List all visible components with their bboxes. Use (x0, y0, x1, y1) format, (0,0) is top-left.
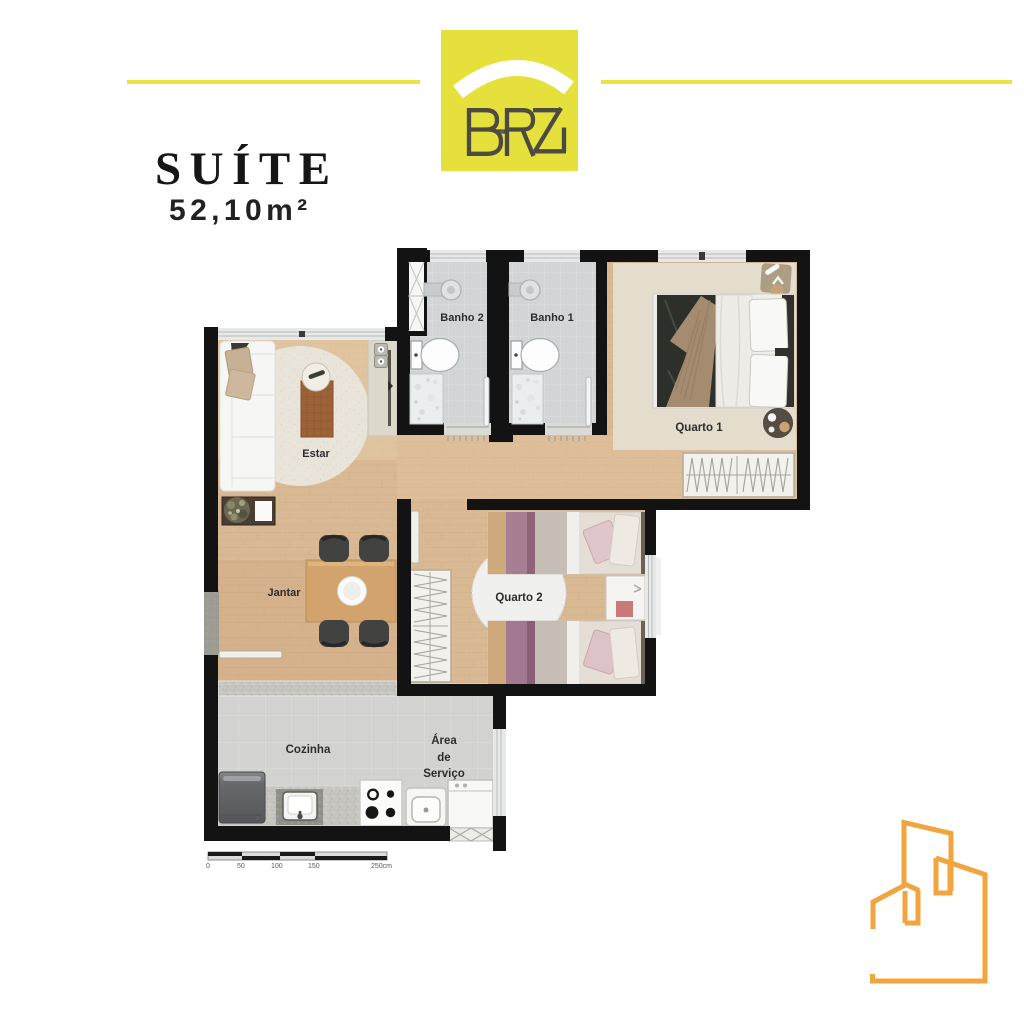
svg-text:250cm: 250cm (371, 863, 392, 870)
svg-text:0: 0 (206, 863, 210, 870)
svg-text:150: 150 (308, 863, 320, 870)
svg-text:Serviço: Serviço (423, 768, 465, 780)
svg-text:Cozinha: Cozinha (286, 744, 331, 756)
svg-text:SUÍTE: SUÍTE (155, 143, 339, 195)
svg-text:de: de (437, 752, 450, 764)
svg-text:Estar: Estar (302, 448, 330, 460)
svg-text:Banho 1: Banho 1 (530, 312, 573, 324)
svg-text:Área: Área (431, 734, 457, 747)
svg-text:100: 100 (271, 863, 283, 870)
svg-text:50: 50 (237, 863, 245, 870)
svg-text:Quarto 2: Quarto 2 (495, 592, 542, 604)
svg-text:Banho 2: Banho 2 (440, 312, 483, 324)
svg-text:52,10m²: 52,10m² (169, 194, 312, 227)
svg-text:Jantar: Jantar (267, 587, 301, 599)
svg-text:Quarto 1: Quarto 1 (675, 422, 723, 434)
